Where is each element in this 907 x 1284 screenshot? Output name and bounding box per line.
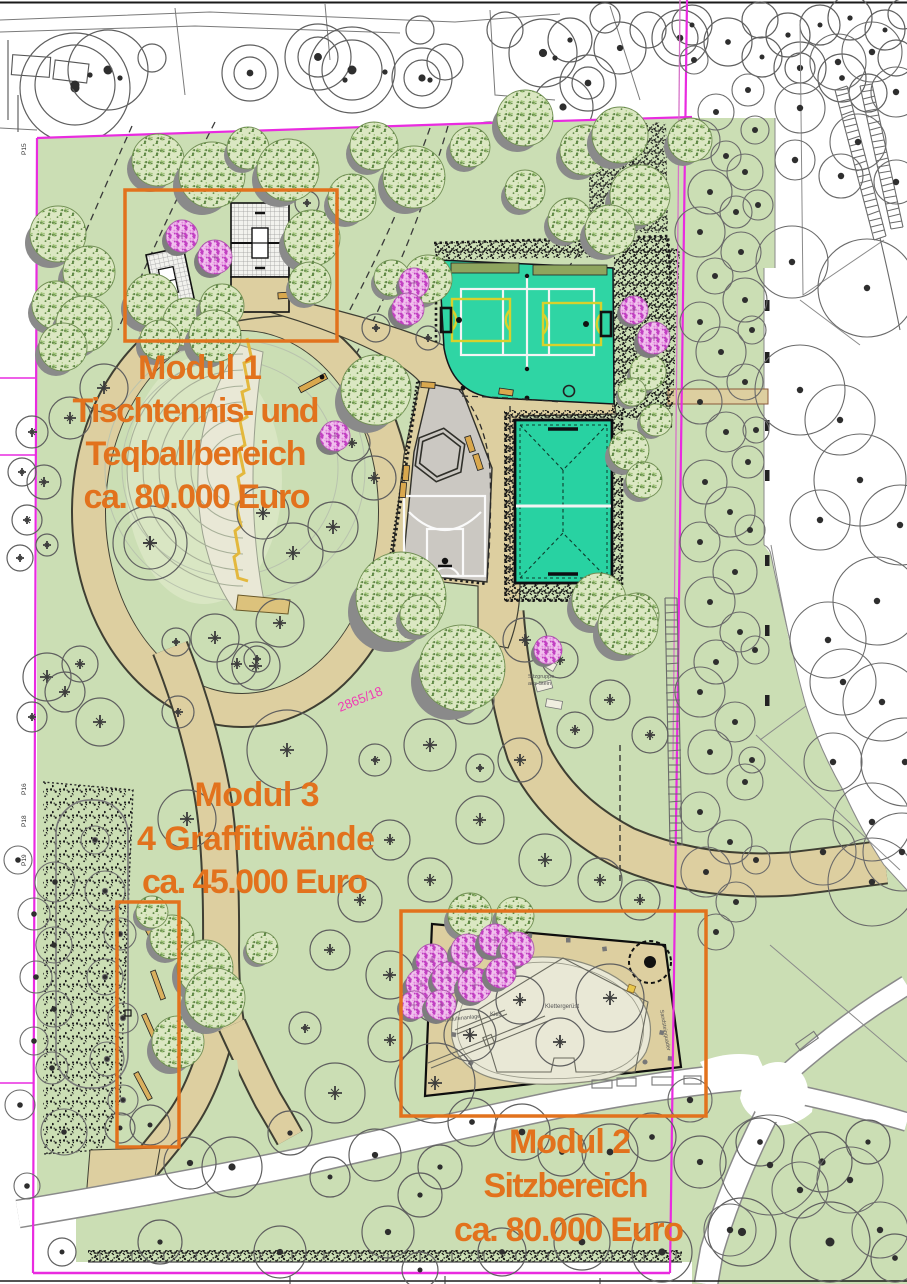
svg-text:Tischtennis- und: Tischtennis- und (73, 392, 320, 430)
svg-text:P15: P15 (21, 143, 28, 155)
svg-text:aus Stein: aus Stein (528, 681, 551, 687)
svg-text:P19: P19 (21, 854, 28, 866)
svg-text:4 Graffitiwände: 4 Graffitiwände (137, 820, 375, 858)
svg-text:ca. 80.000 Euro: ca. 80.000 Euro (454, 1211, 684, 1249)
svg-text:ca. 80.000 Euro: ca. 80.000 Euro (84, 478, 311, 516)
svg-text:P18: P18 (21, 815, 28, 827)
svg-text:Modul 3: Modul 3 (195, 776, 320, 814)
svg-text:ca. 45.000 Euro: ca. 45.000 Euro (142, 863, 368, 901)
svg-text:Sitzbereich: Sitzbereich (484, 1167, 649, 1205)
svg-text:P16: P16 (21, 783, 28, 795)
svg-text:Modul 2: Modul 2 (509, 1123, 631, 1161)
svg-text:Teqballbereich: Teqballbereich (86, 435, 307, 473)
svg-text:Modul 1: Modul 1 (138, 349, 262, 387)
svg-text:Klettergerüst: Klettergerüst (545, 1004, 579, 1010)
